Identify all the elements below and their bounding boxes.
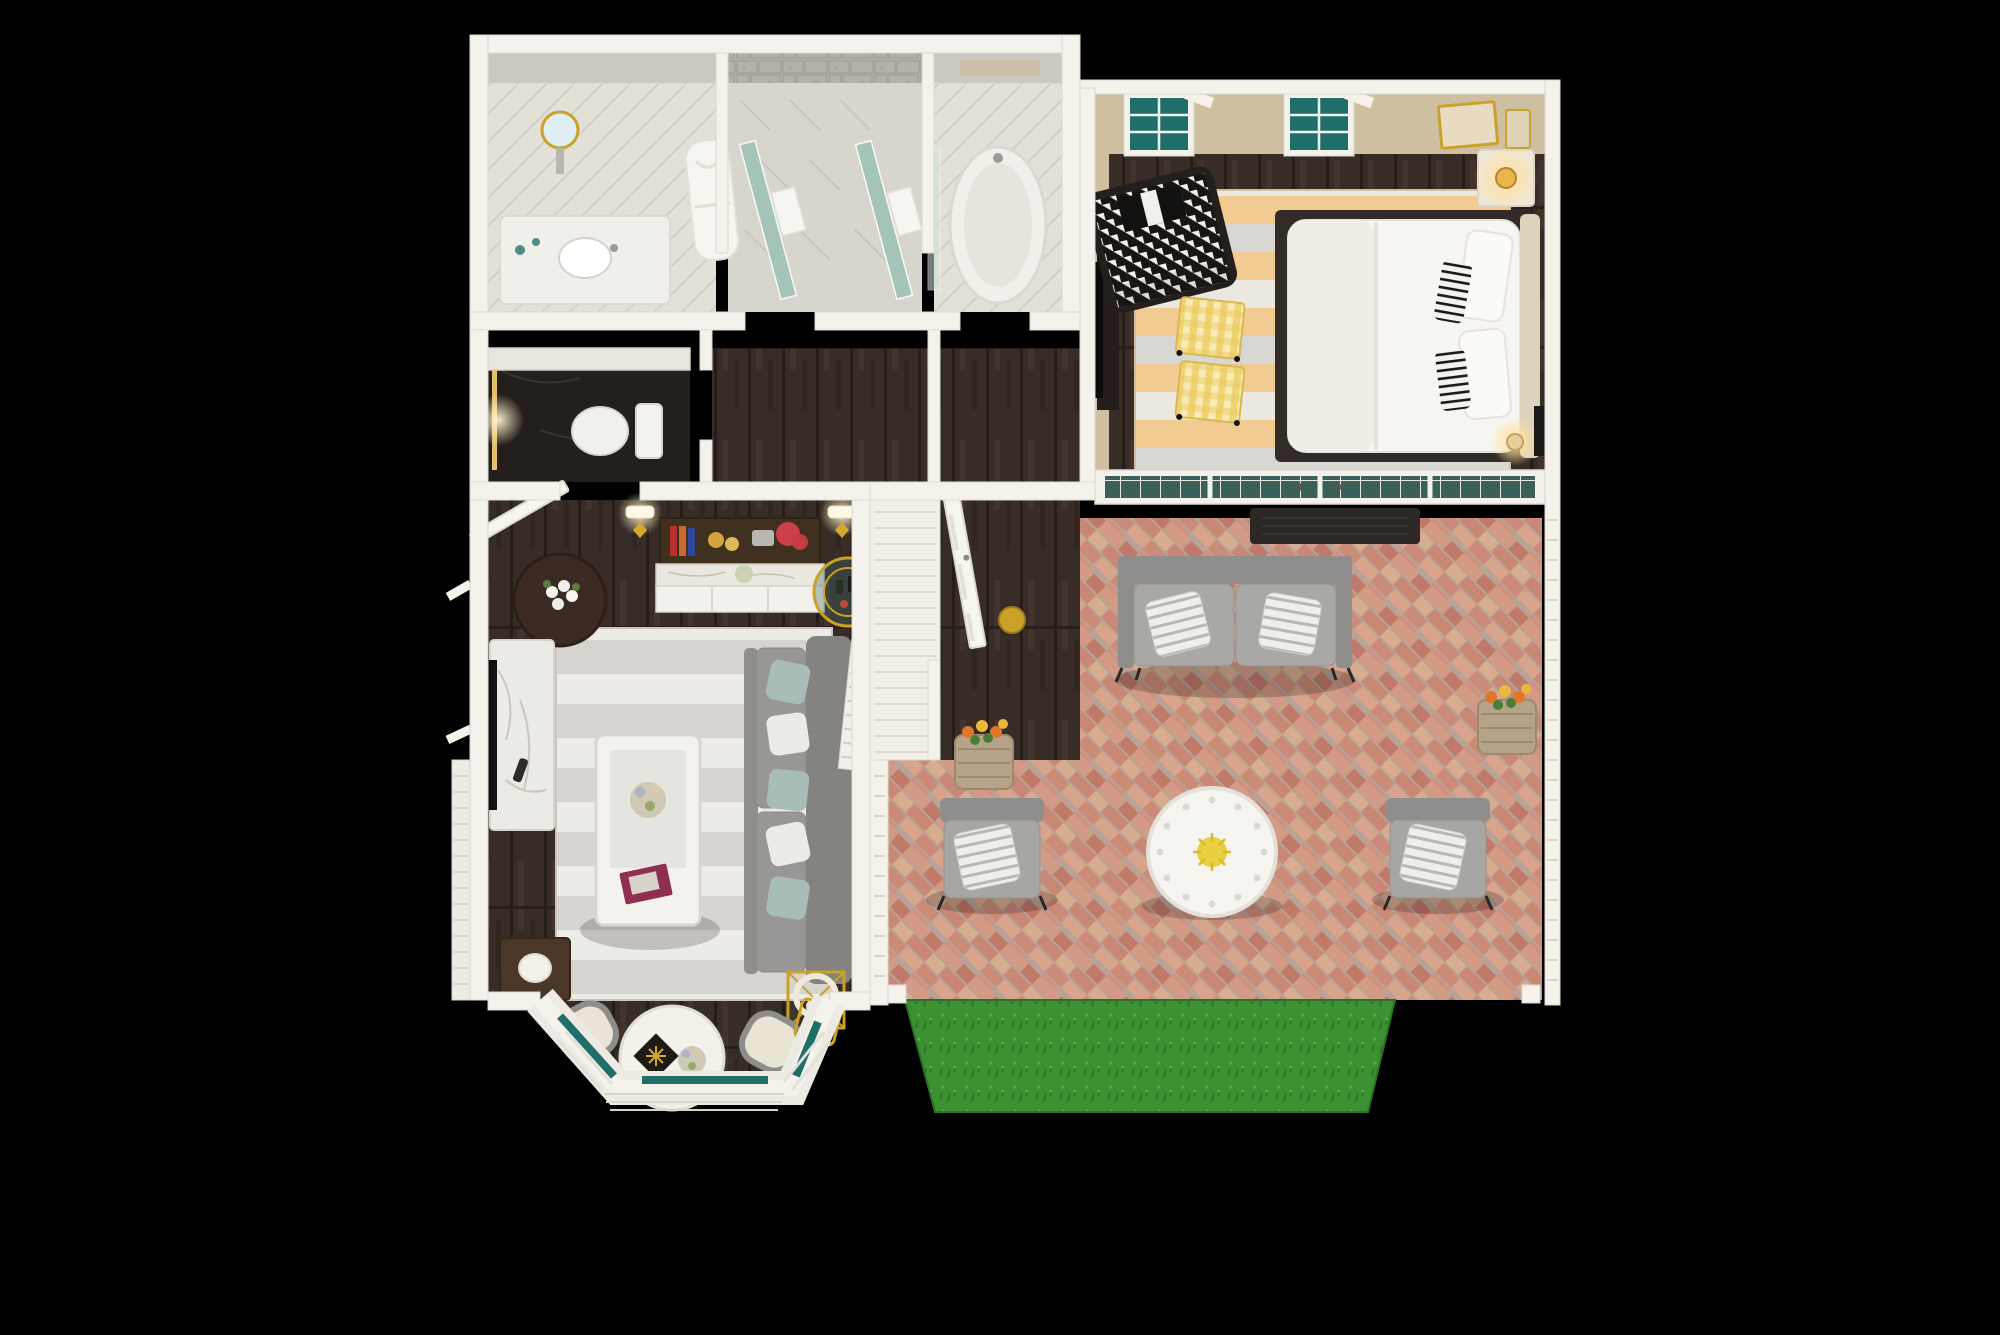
leaning-art-frame	[1534, 406, 1544, 456]
bathroom-north-wall-face	[488, 53, 728, 83]
loveseat-back	[1130, 556, 1340, 584]
table-lamp	[1496, 168, 1516, 188]
bedroom-tv	[1095, 262, 1103, 398]
bathtub-basin	[964, 163, 1032, 287]
floor-plan-render	[0, 0, 2000, 1335]
bathroom-south-wall-a	[470, 312, 745, 330]
marble-ledge	[488, 348, 690, 370]
dark-end-table	[500, 938, 570, 1000]
wc-hall-divider-b	[700, 440, 712, 482]
pillow-white-2	[764, 820, 811, 867]
outdoor-armchair-right	[1372, 798, 1504, 914]
book-red	[670, 526, 677, 556]
marble-console	[490, 640, 554, 830]
pillow-white-1	[765, 711, 810, 756]
hallway-floor	[712, 348, 928, 482]
decanter-red	[840, 600, 848, 608]
north-exterior-wall	[470, 35, 1080, 53]
hall-corridor-divider-a	[928, 330, 940, 490]
bottle-green	[836, 580, 843, 594]
gold-starburst	[646, 1046, 666, 1066]
tub-wall-niche	[960, 60, 1040, 76]
living-north-wall-a	[470, 482, 560, 500]
folded-duvet	[1288, 220, 1376, 452]
bedroom-west-wall	[1080, 88, 1095, 500]
silver-box-decor	[752, 530, 774, 546]
gold-floor-bowl	[999, 607, 1025, 633]
toilet-tank	[636, 404, 662, 458]
toiletry-cup	[515, 245, 525, 255]
yellow-ottoman-2	[1175, 361, 1245, 423]
door-handle-2	[1335, 484, 1342, 491]
corridor-south-wall	[870, 482, 1095, 500]
outdoor-armchair-left	[926, 798, 1058, 914]
shower-stone-wall	[728, 53, 922, 83]
table-centerpiece	[678, 1046, 706, 1074]
door-handle-1	[1297, 484, 1304, 491]
mirror-stand	[556, 148, 564, 174]
floor-plan-canvas	[0, 0, 2000, 1335]
shower-tub-divider	[922, 53, 934, 253]
west-siding-louvers	[452, 760, 470, 1000]
loveseat-pillow-right	[1258, 592, 1323, 657]
gold-pear-decor	[708, 532, 724, 548]
end-table-lamp	[519, 954, 551, 982]
wc-hall-divider-a	[700, 330, 712, 370]
tub-faucet	[993, 153, 1003, 163]
yellow-ottoman-1	[1175, 297, 1245, 359]
wall-sconce-left	[626, 506, 654, 518]
round-patio-table	[1142, 788, 1282, 920]
bathroom-south-wall-b	[815, 312, 960, 330]
patio-post-left	[888, 985, 906, 1003]
sink-faucet	[610, 244, 618, 252]
second-lamp	[1507, 434, 1523, 450]
bedroom-north-wall-cap	[1080, 80, 1560, 94]
vanity-shower-divider	[716, 53, 728, 253]
coffee-table	[580, 735, 720, 950]
french-door-wall	[1095, 470, 1545, 504]
pillow-teal-2	[766, 768, 810, 812]
pillow-teal-1	[764, 658, 811, 705]
book-orange	[679, 526, 686, 556]
red-coral-decor-2	[792, 534, 808, 550]
toiletry-cup-2	[532, 238, 540, 246]
lawn-strip	[905, 1000, 1395, 1112]
vanity-sink	[559, 238, 611, 278]
living-north-wall-b	[640, 482, 870, 500]
flower-vase	[630, 782, 666, 818]
gold-wall-frame	[1438, 102, 1497, 149]
bathroom-east-wall	[1062, 35, 1080, 330]
east-exterior-wall	[1545, 80, 1560, 1005]
living-east-wall	[852, 500, 870, 1000]
hall-corridor-divider-b	[928, 660, 940, 760]
cabinet-doors	[656, 586, 824, 612]
wall-tv	[488, 660, 497, 810]
gold-pear-decor-2	[725, 537, 739, 551]
toilet-bowl	[572, 407, 628, 455]
book-blue	[688, 528, 695, 556]
magnifying-mirror	[542, 112, 578, 148]
gold-wall-frame-small	[1506, 110, 1530, 148]
west-exterior-wall	[470, 35, 488, 1000]
bathroom-south-wall-c	[1030, 312, 1080, 330]
counter-flowers	[735, 565, 753, 583]
patio-post-right	[1522, 985, 1540, 1003]
pillow-teal-3	[765, 875, 811, 921]
nightstand	[1474, 146, 1538, 210]
